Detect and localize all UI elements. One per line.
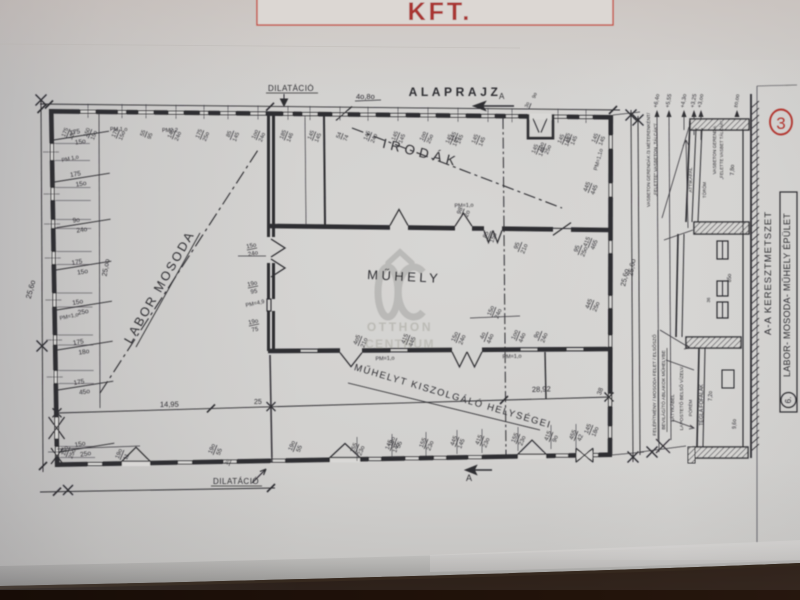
svg-text:„FELETTE VASBET TÁLCÁK”: „FELETTE VASBET TÁLCÁK” bbox=[719, 120, 724, 179]
svg-text:25: 25 bbox=[254, 399, 262, 406]
svg-text:9o: 9o bbox=[72, 217, 81, 225]
svg-text:36: 36 bbox=[706, 297, 711, 303]
svg-text:LÁTYKÁBEL: LÁTYKÁBEL bbox=[669, 394, 676, 422]
svg-text:3: 3 bbox=[776, 114, 785, 133]
svg-text:14,95: 14,95 bbox=[160, 400, 179, 409]
svg-text:ATTIKAFAL: ATTIKAFAL bbox=[688, 167, 694, 192]
svg-text:BEVILÁGÍTÓ ABLAKOK MŰHELYBE: BEVILÁGÍTÓ ABLAKOK MŰHELYBE bbox=[660, 350, 667, 429]
svg-text:PM=1,o: PM=1,o bbox=[375, 356, 394, 363]
svg-text:7,8o: 7,8o bbox=[730, 165, 736, 176]
svg-text:PÓRÉM: PÓRÉM bbox=[687, 400, 693, 417]
svg-text:28,92: 28,92 bbox=[532, 384, 551, 394]
svg-text:DILATÁCIÓ: DILATÁCIÓ bbox=[213, 477, 259, 486]
svg-text:PM=1,o: PM=1,o bbox=[502, 354, 521, 361]
svg-text:DILATÁCIÓ: DILATÁCIÓ bbox=[268, 84, 314, 93]
svg-text:PM=1,o: PM=1,o bbox=[454, 203, 473, 210]
svg-text:PM2,2: PM2,2 bbox=[162, 128, 178, 134]
svg-text:VASBETON GERENDA: VASBETON GERENDA bbox=[712, 125, 717, 175]
svg-text:ALAPRAJZ: ALAPRAJZ bbox=[409, 85, 502, 99]
svg-text:85o: 85o bbox=[727, 274, 733, 283]
svg-text:9,6o: 9,6o bbox=[732, 419, 738, 429]
svg-text:TÉGLA FŐFALAK: TÉGLA FŐFALAK bbox=[698, 384, 705, 426]
svg-text:„FELETTE” VASBETON „TÁLCÁK”/: „FELETTE” VASBETON „TÁLCÁK”/ bbox=[652, 123, 658, 196]
svg-text:4o,8o: 4o,8o bbox=[356, 92, 375, 101]
svg-text:7,2o: 7,2o bbox=[708, 391, 714, 401]
svg-text:TÖRÖM: TÖRÖM bbox=[702, 182, 707, 198]
svg-text:OTTHON: OTTHON bbox=[367, 320, 433, 334]
svg-text:PM 1,o: PM 1,o bbox=[110, 127, 127, 133]
svg-text:A: A bbox=[466, 473, 472, 483]
svg-text:KFT.: KFT. bbox=[408, 0, 473, 26]
svg-text:FELÉPÍTMÉNY / MOSODA FELET / E: FELÉPÍTMÉNY / MOSODA FELET / ELSŐSZŐ bbox=[651, 334, 658, 435]
svg-text:LAPOSTETŐ BELSŐ VÍZELV.: LAPOSTETŐ BELSŐ VÍZELV. bbox=[678, 366, 685, 431]
svg-text:LABOR- MOSODA- MŰHELY ÉPÜLET: LABOR- MOSODA- MŰHELY ÉPÜLET bbox=[782, 213, 792, 377]
svg-text:6.: 6. bbox=[784, 397, 793, 404]
svg-text:VASBETON GERENDÁK /3 MÉTERENKÉ: VASBETON GERENDÁK /3 MÉTERENKÉNT/ bbox=[645, 112, 651, 207]
svg-text:A-A KERESZTMETSZET: A-A KERESZTMETSZET bbox=[763, 211, 774, 335]
